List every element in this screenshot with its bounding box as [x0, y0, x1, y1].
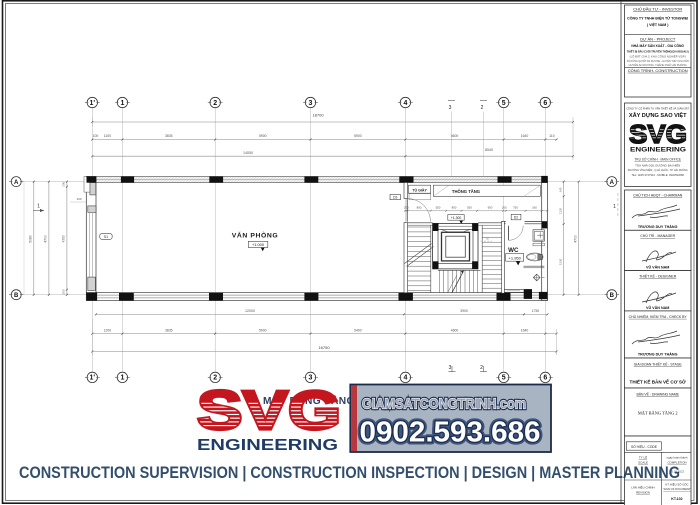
svg-text:2: 2	[480, 365, 483, 371]
svg-text:200: 200	[62, 181, 66, 186]
svg-text:GIAMSATCONGTRINH.com: GIAMSATCONGTRINH.com	[362, 396, 526, 413]
svg-text:1640: 1640	[521, 328, 529, 332]
svg-text:18700: 18700	[312, 113, 324, 118]
svg-text:1': 1'	[90, 100, 96, 107]
svg-text:2: 2	[481, 105, 484, 111]
svg-text:2: 2	[213, 100, 217, 107]
svg-text:750: 750	[513, 205, 518, 209]
svg-text:SIGN OF DOCUMENT: SIGN OF DOCUMENT	[663, 487, 691, 491]
svg-text:ENGINEERING: ENGINEERING	[630, 148, 686, 154]
svg-text:CÔNG TY TNHH ĐIỆN TỬ TONGWEI: CÔNG TY TNHH ĐIỆN TỬ TONGWEI	[627, 15, 688, 20]
svg-text:XÂY DỰNG SAO VIỆT: XÂY DỰNG SAO VIỆT	[629, 111, 687, 119]
svg-text:CHỦ TỊCH HĐQT - CHAIRMAN: CHỦ TỊCH HĐQT - CHAIRMAN	[633, 192, 683, 197]
svg-text:B: B	[14, 293, 19, 299]
svg-text:3130: 3130	[558, 258, 562, 265]
svg-text:200: 200	[404, 205, 409, 209]
svg-text:D2: D2	[514, 216, 518, 220]
svg-text:KT.102: KT.102	[671, 497, 682, 501]
svg-text:3: 3	[309, 100, 313, 107]
svg-text:ENGINEERING: ENGINEERING	[197, 437, 338, 454]
svg-text:1135: 1135	[558, 208, 562, 215]
svg-text:WC: WC	[508, 247, 519, 254]
svg-text:200: 200	[62, 289, 66, 294]
svg-text:REVISION: REVISION	[636, 490, 650, 494]
svg-text:550: 550	[467, 205, 472, 209]
svg-text:5: 5	[502, 375, 506, 382]
svg-text:1100: 1100	[104, 134, 111, 138]
svg-text:THÔNG TẦNG: THÔNG TẦNG	[452, 189, 480, 194]
svg-text:S1: S1	[104, 235, 108, 239]
svg-text:KÝ HIỆU SỐ GỐC: KÝ HIỆU SỐ GỐC	[665, 481, 688, 486]
svg-text:VĂN PHÒNG: VĂN PHÒNG	[232, 230, 279, 239]
svg-text:0902.593.686: 0902.593.686	[360, 417, 541, 449]
svg-text:12000: 12000	[245, 309, 255, 313]
svg-text:550: 550	[436, 205, 441, 209]
svg-text:D3: D3	[393, 196, 397, 200]
svg-text:SỐ HIỆU - CODE: SỐ HIỆU - CODE	[631, 444, 658, 449]
svg-text:4300: 4300	[62, 235, 66, 242]
svg-text:5: 5	[502, 100, 506, 107]
svg-text:THIẾT BỊ ĐẦU CUỐI TRUYỀN THÔNG: THIẾT BỊ ĐẦU CUỐI TRUYỀN THÔNG(GIAI ĐOẠN…	[627, 48, 689, 53]
svg-text:1750: 1750	[532, 309, 540, 313]
svg-text:TRỤ SỞ CHÍNH - MAIN OFFICE: TRỤ SỞ CHÍNH - MAIN OFFICE	[634, 157, 681, 162]
svg-text:+1.300: +1.300	[451, 216, 462, 220]
svg-text:TÒA NHÀ D05, ĐƯỜNG ĐẠI NIÊN: TÒA NHÀ D05, ĐƯỜNG ĐẠI NIÊN	[635, 162, 680, 167]
svg-text:NHÀ MÁY SẢN XUẤT - GIA CÔNG: NHÀ MÁY SẢN XUẤT - GIA CÔNG	[631, 43, 684, 48]
svg-text:THIẾT KẾ BẢN VẼ CƠ SỞ: THIẾT KẾ BẢN VẼ CƠ SỞ	[630, 378, 686, 384]
svg-text:5900: 5900	[354, 134, 362, 138]
svg-text:800: 800	[452, 205, 457, 209]
svg-text:3900: 3900	[460, 309, 468, 313]
svg-text:CHỦ ĐẦU TƯ - INVESTOR: CHỦ ĐẦU TƯ - INVESTOR	[633, 7, 682, 12]
svg-text:DỰ ÁN - PROJECT: DỰ ÁN - PROJECT	[640, 36, 676, 41]
svg-text:5400: 5400	[354, 328, 362, 332]
svg-text:75: 75	[485, 237, 489, 241]
svg-text:VŨ VĂN NAM: VŨ VĂN NAM	[646, 305, 669, 310]
svg-text:900: 900	[488, 205, 493, 209]
svg-text:16750: 16750	[318, 345, 330, 350]
svg-text:CÔNG TY CỔ PHẦN TƯ VẤN THIẾT K: CÔNG TY CỔ PHẦN TƯ VẤN THIẾT KẾ VÀ GIÁM …	[626, 105, 689, 110]
svg-text:4700: 4700	[44, 235, 48, 243]
svg-text:VŨ VĂN NAM: VŨ VĂN NAM	[646, 265, 669, 270]
svg-text:TEL: 0225.3747916 - MOBILE: 09: TEL: 0225.3747916 - MOBILE: 0902593686	[631, 173, 684, 177]
svg-text:1': 1'	[90, 375, 96, 382]
svg-text:6: 6	[543, 375, 547, 382]
svg-text:TRƯƠNG DUY THẮNG: TRƯƠNG DUY THẮNG	[638, 224, 678, 229]
svg-text:BẢN VẼ - DRAWING NAME: BẢN VẼ - DRAWING NAME	[636, 391, 679, 396]
svg-text:5900: 5900	[259, 328, 267, 332]
svg-text:4: 4	[403, 100, 407, 107]
svg-text:4600: 4600	[451, 134, 459, 138]
svg-text:8540: 8540	[485, 148, 493, 152]
svg-text:4600: 4600	[451, 328, 459, 332]
svg-text:TỦ GIẦY: TỦ GIẦY	[412, 187, 427, 192]
svg-text:A: A	[14, 180, 19, 186]
svg-text:TỶ LỆ: TỶ LỆ	[639, 454, 647, 459]
svg-text:160: 160	[532, 205, 537, 209]
svg-text:110: 110	[549, 134, 555, 138]
svg-text:CÔNG TRÌNH- CONSTRUCTION: CÔNG TRÌNH- CONSTRUCTION	[628, 68, 688, 73]
svg-text:1: 1	[613, 204, 616, 210]
svg-text:200: 200	[502, 205, 507, 209]
svg-text:ngày hoàn thành: ngày hoàn thành	[667, 455, 688, 459]
svg-text:100: 100	[93, 134, 99, 138]
svg-text:GIAI ĐOẠN THIẾT KẾ - STAGE: GIAI ĐOẠN THIẾT KẾ - STAGE	[634, 361, 683, 366]
svg-text:800: 800	[417, 205, 422, 209]
svg-text:1200: 1200	[104, 328, 112, 332]
svg-text:CHỦ TRÌ - MANAGER: CHỦ TRÌ - MANAGER	[640, 233, 675, 238]
svg-text:( VIỆT NAM ): ( VIỆT NAM )	[647, 22, 669, 27]
svg-text:MẶT BẰNG TẦNG 2: MẶT BẰNG TẦNG 2	[638, 410, 678, 416]
svg-text:1: 1	[37, 204, 40, 210]
svg-text:TRƯƠNG DUY THẮNG: TRƯƠNG DUY THẮNG	[638, 351, 678, 356]
svg-text:B: B	[610, 293, 615, 299]
svg-text:+1.950: +1.950	[509, 255, 522, 260]
svg-text:1: 1	[120, 375, 124, 382]
svg-text:4700: 4700	[573, 235, 577, 243]
svg-text:CONSTRUCTION SUPERVISION | CON: CONSTRUCTION SUPERVISION | CONSTRUCTION …	[19, 463, 680, 482]
svg-text:6: 6	[543, 100, 547, 107]
svg-text:14050: 14050	[243, 151, 253, 155]
svg-text:160: 160	[76, 197, 81, 201]
svg-text:1640: 1640	[521, 134, 529, 138]
svg-text:3835: 3835	[165, 328, 173, 332]
svg-text:5080: 5080	[29, 235, 33, 243]
svg-text:340: 340	[558, 187, 562, 192]
svg-text:3: 3	[449, 365, 452, 371]
svg-text:1: 1	[120, 100, 124, 107]
svg-text:THIẾT KẾ - DESIGNER: THIẾT KẾ - DESIGNER	[639, 273, 677, 278]
svg-text:3: 3	[449, 105, 452, 111]
svg-text:A: A	[610, 180, 615, 186]
svg-text:4: 4	[403, 375, 407, 382]
svg-text:LẦN HIỆU CHỈNH: LẦN HIỆU CHỈNH	[631, 484, 654, 489]
svg-text:3835: 3835	[165, 134, 173, 138]
svg-text:5900: 5900	[259, 134, 267, 138]
svg-text:+1.000: +1.000	[252, 242, 265, 247]
svg-text:CHỦ NHIỆM, KIỂM TRA - CHECK BY: CHỦ NHIỆM, KIỂM TRA - CHECK BY	[629, 314, 688, 319]
